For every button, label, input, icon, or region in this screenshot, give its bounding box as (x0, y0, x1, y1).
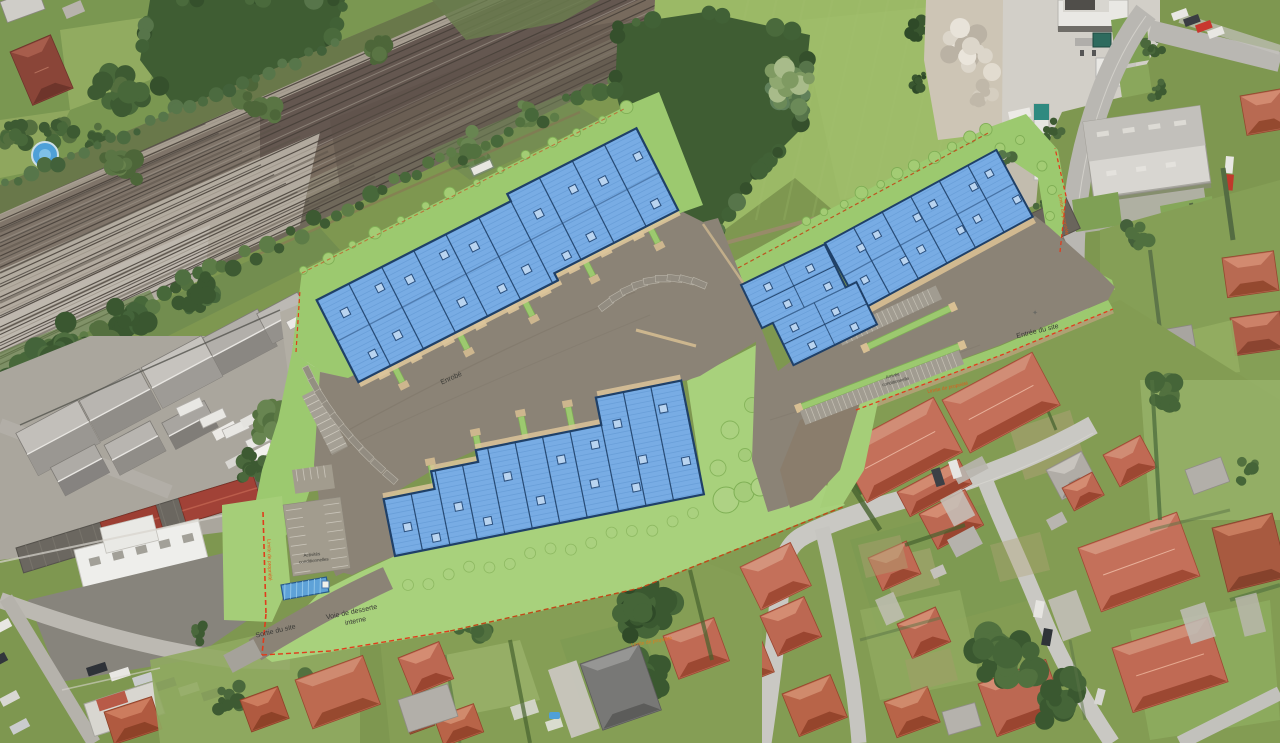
svg-text:✦: ✦ (1032, 309, 1038, 317)
